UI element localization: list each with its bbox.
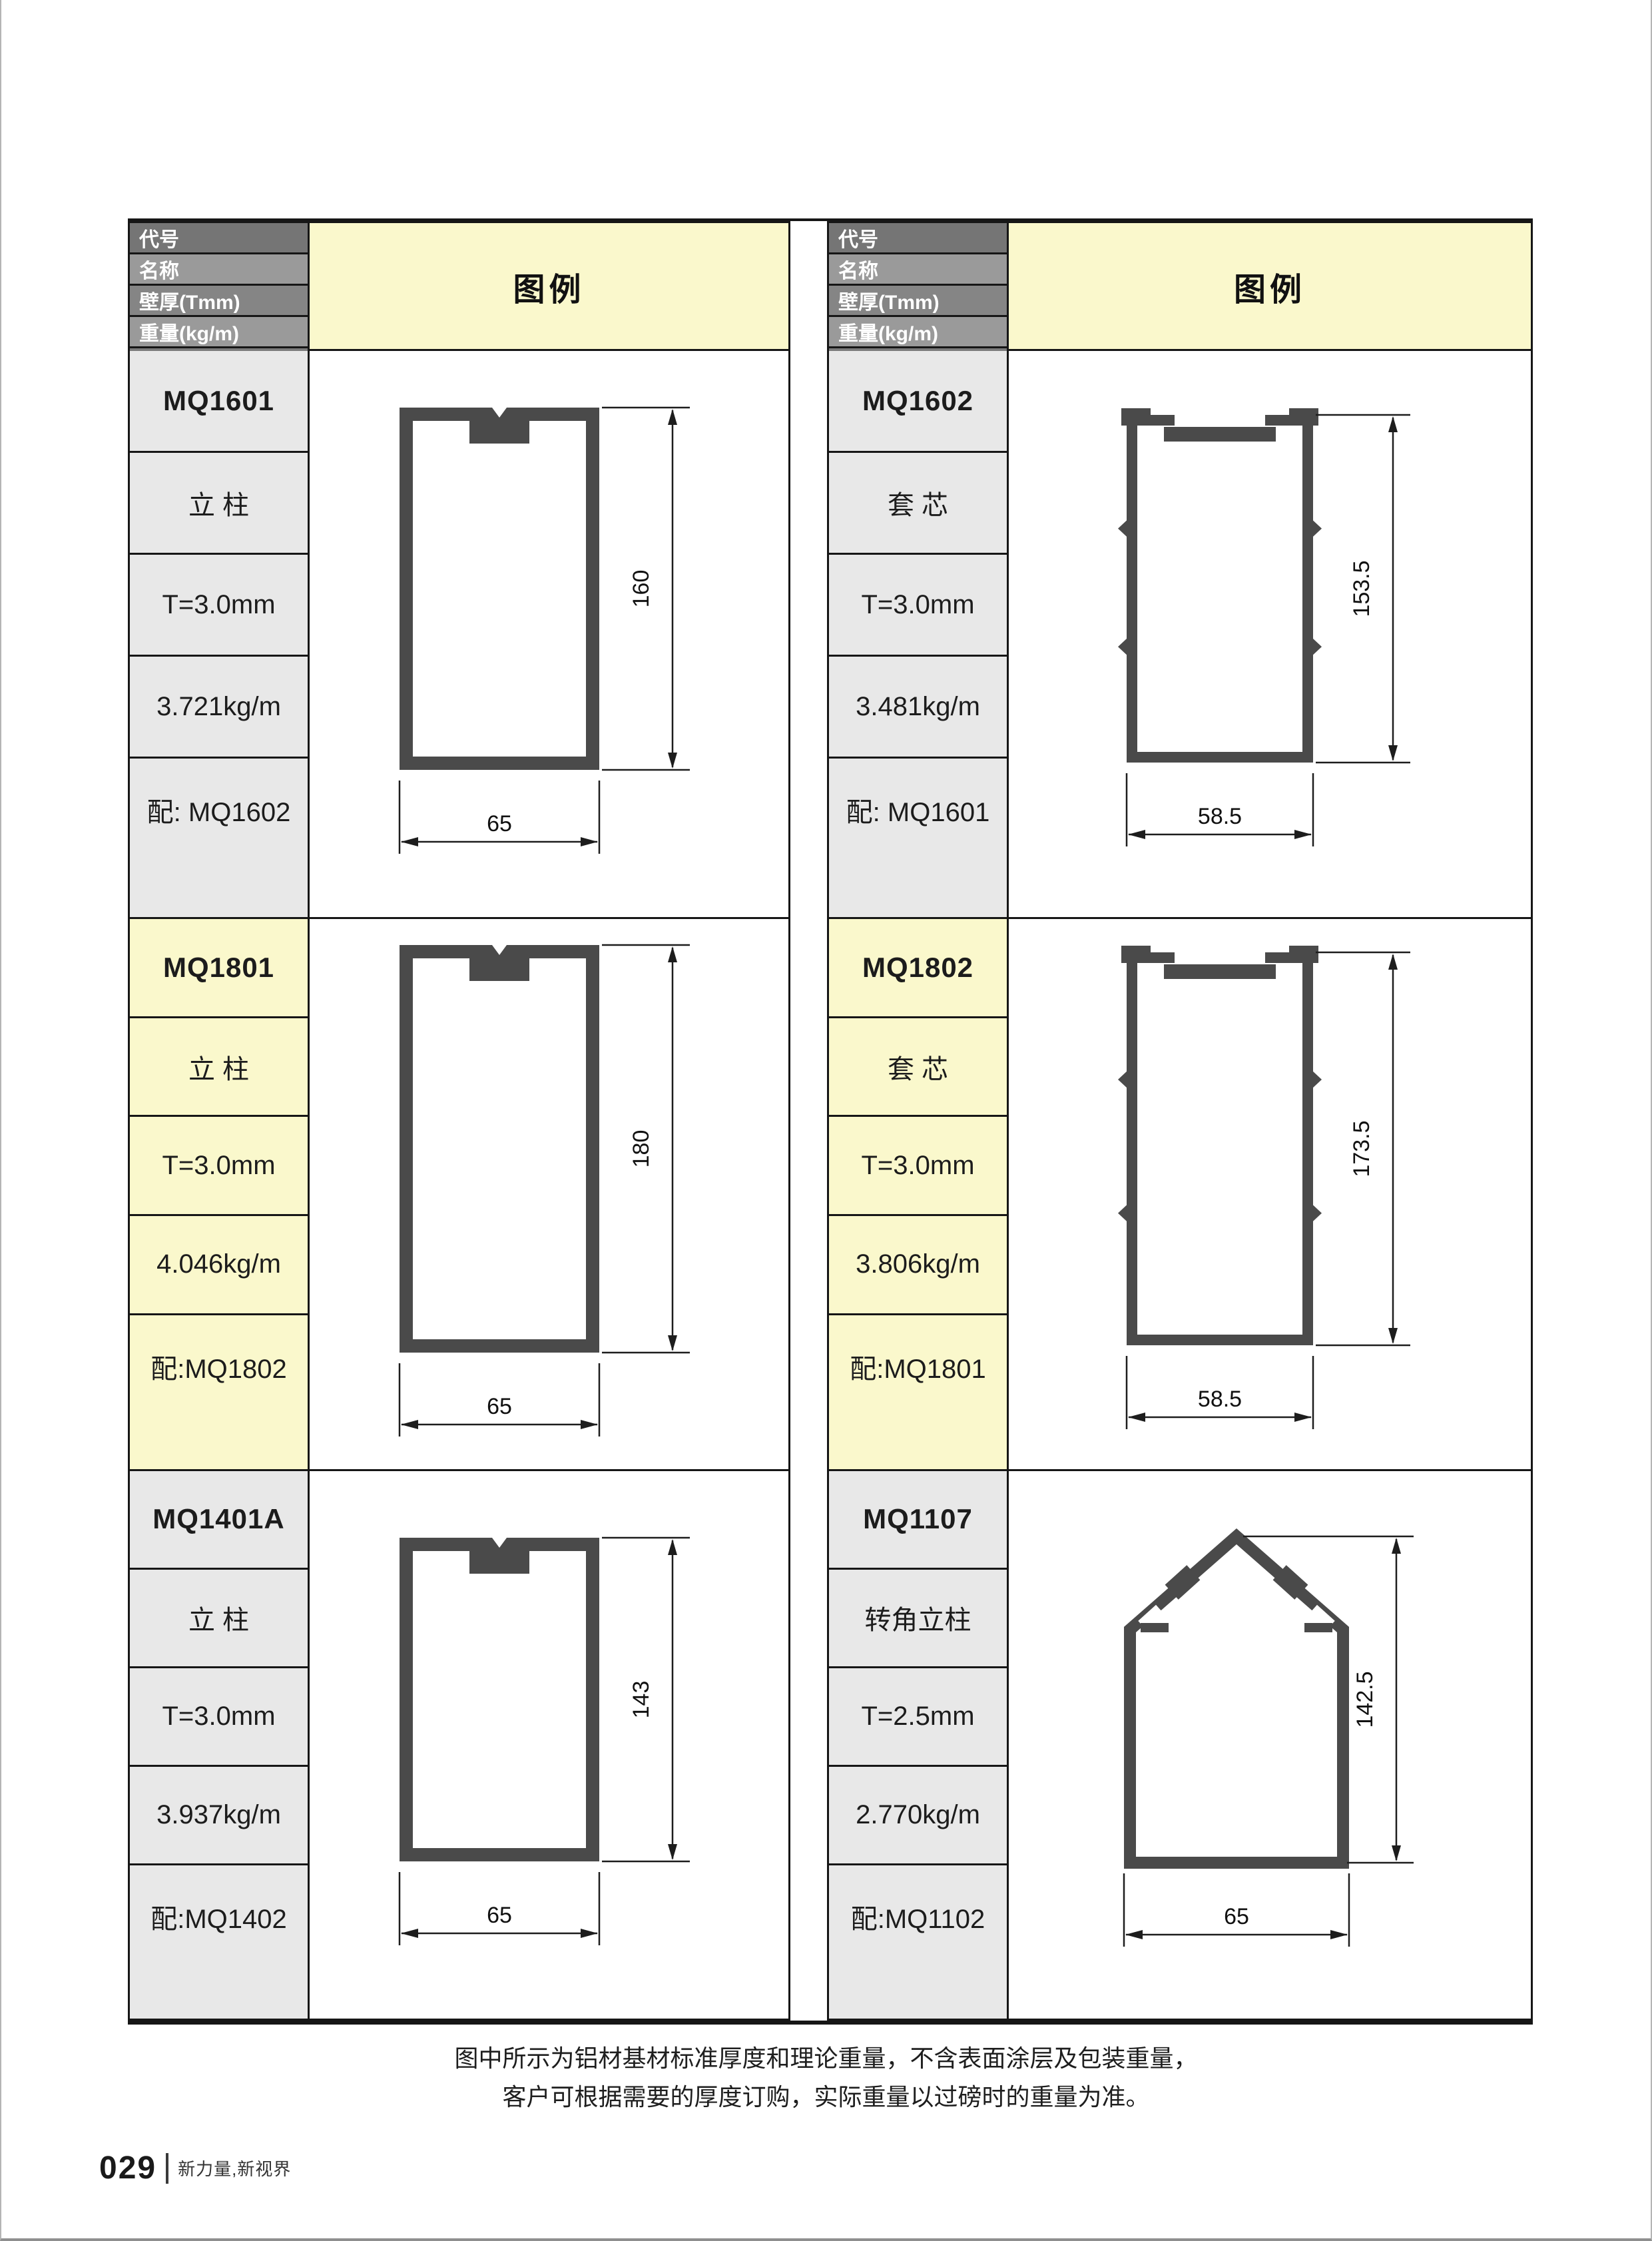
cell-match: 配:MQ1102 bbox=[829, 1865, 1007, 2019]
label-stack-MQ1801: MQ1801 立 柱 T=3.0mm 4.046kg/m 配:MQ1802 bbox=[130, 919, 310, 1471]
header-row-code: 代号 bbox=[829, 223, 1007, 254]
cell-name: 立 柱 bbox=[130, 453, 308, 555]
svg-text:65: 65 bbox=[487, 1903, 512, 1928]
svg-text:180: 180 bbox=[629, 1130, 654, 1168]
footer-divider bbox=[166, 2153, 168, 2184]
header-row-thickness: 壁厚(Tmm) bbox=[130, 286, 308, 317]
svg-text:153.5: 153.5 bbox=[1349, 560, 1374, 617]
cell-weight: 3.937kg/m bbox=[130, 1767, 308, 1865]
label-stack-MQ1107: MQ1107 转角立柱 T=2.5mm 2.770kg/m 配:MQ1102 bbox=[829, 1471, 1009, 2019]
legend-header: 图例 bbox=[1009, 223, 1531, 351]
header-row-weight: 重量(kg/m) bbox=[829, 317, 1007, 348]
header-row-name: 名称 bbox=[829, 254, 1007, 286]
svg-text:58.5: 58.5 bbox=[1198, 804, 1242, 829]
legend-header: 图例 bbox=[310, 223, 788, 351]
spec-table: 代号 名称 壁厚(Tmm) 重量(kg/m) 配套 图例 MQ1601 立 柱 … bbox=[128, 218, 1533, 2025]
table-group-right: 代号 名称 壁厚(Tmm) 重量(kg/m) 配套 图例 MQ1602 套 芯 … bbox=[827, 221, 1533, 2021]
cell-thickness: T=3.0mm bbox=[829, 1117, 1007, 1216]
profile-drawing-MQ1107: 142.5 65 bbox=[1009, 1471, 1531, 2019]
header-row-weight: 重量(kg/m) bbox=[130, 317, 308, 348]
profile-drawing-MQ1801: 180 65 bbox=[310, 919, 788, 1471]
cell-weight: 3.721kg/m bbox=[130, 657, 308, 759]
cell-code: MQ1802 bbox=[829, 919, 1007, 1018]
footer-note-line1: 图中所示为铝材基材标准厚度和理论重量，不含表面涂层及包装重量， bbox=[1, 2039, 1651, 2078]
cell-code: MQ1602 bbox=[829, 351, 1007, 453]
footer-note-line2: 客户可根据需要的厚度订购，实际重量以过磅时的重量为准。 bbox=[1, 2078, 1651, 2116]
svg-text:58.5: 58.5 bbox=[1198, 1387, 1242, 1412]
cell-match: 配:MQ1801 bbox=[829, 1315, 1007, 1469]
cell-weight: 3.481kg/m bbox=[829, 657, 1007, 759]
cell-code: MQ1601 bbox=[130, 351, 308, 453]
svg-text:143: 143 bbox=[629, 1681, 654, 1719]
footer-note: 图中所示为铝材基材标准厚度和理论重量，不含表面涂层及包装重量， 客户可根据需要的… bbox=[1, 2039, 1651, 2116]
cell-code: MQ1107 bbox=[829, 1471, 1007, 1570]
header-row-code: 代号 bbox=[130, 223, 308, 254]
cell-match: 配:MQ1402 bbox=[130, 1865, 308, 2019]
cell-name: 转角立柱 bbox=[829, 1570, 1007, 1668]
cell-name: 套 芯 bbox=[829, 453, 1007, 555]
profile-drawing-MQ1802: 173.5 58.5 bbox=[1009, 919, 1531, 1471]
cell-name: 立 柱 bbox=[130, 1018, 308, 1118]
cell-thickness: T=3.0mm bbox=[130, 1668, 308, 1767]
cell-match: 配: MQ1602 bbox=[130, 759, 308, 917]
svg-text:160: 160 bbox=[629, 570, 654, 608]
label-stack-MQ1602: MQ1602 套 芯 T=3.0mm 3.481kg/m 配: MQ1601 bbox=[829, 351, 1009, 919]
svg-text:65: 65 bbox=[487, 1394, 512, 1419]
cell-thickness: T=3.0mm bbox=[130, 555, 308, 657]
svg-text:65: 65 bbox=[487, 811, 512, 836]
cell-code: MQ1401A bbox=[130, 1471, 308, 1570]
cell-thickness: T=3.0mm bbox=[130, 1117, 308, 1216]
cell-match: 配:MQ1802 bbox=[130, 1315, 308, 1469]
cell-weight: 2.770kg/m bbox=[829, 1767, 1007, 1865]
page-footer: 029 新力量,新视界 bbox=[99, 2150, 291, 2186]
label-stack-MQ1401A: MQ1401A 立 柱 T=3.0mm 3.937kg/m 配:MQ1402 bbox=[130, 1471, 310, 2019]
profile-drawing-MQ1601: 160 65 bbox=[310, 351, 788, 919]
cell-match: 配: MQ1601 bbox=[829, 759, 1007, 917]
label-stack-MQ1601: MQ1601 立 柱 T=3.0mm 3.721kg/m 配: MQ1602 bbox=[130, 351, 310, 919]
cell-thickness: T=3.0mm bbox=[829, 555, 1007, 657]
profile-drawing-MQ1602: 153.5 58.5 bbox=[1009, 351, 1531, 919]
cell-weight: 4.046kg/m bbox=[130, 1216, 308, 1315]
catalog-page: 代号 名称 壁厚(Tmm) 重量(kg/m) 配套 图例 MQ1601 立 柱 … bbox=[0, 0, 1652, 2241]
label-stack-MQ1802: MQ1802 套 芯 T=3.0mm 3.806kg/m 配:MQ1801 bbox=[829, 919, 1009, 1471]
svg-text:142.5: 142.5 bbox=[1352, 1671, 1378, 1728]
svg-text:65: 65 bbox=[1224, 1904, 1249, 1929]
table-group-left: 代号 名称 壁厚(Tmm) 重量(kg/m) 配套 图例 MQ1601 立 柱 … bbox=[128, 221, 790, 2021]
header-label-column: 代号 名称 壁厚(Tmm) 重量(kg/m) 配套 bbox=[130, 223, 310, 351]
cell-thickness: T=2.5mm bbox=[829, 1668, 1007, 1767]
svg-text:173.5: 173.5 bbox=[1349, 1120, 1374, 1177]
profile-drawing-MQ1401A: 143 65 bbox=[310, 1471, 788, 2019]
cell-weight: 3.806kg/m bbox=[829, 1216, 1007, 1315]
header-label-column: 代号 名称 壁厚(Tmm) 重量(kg/m) 配套 bbox=[829, 223, 1009, 351]
page-number: 029 bbox=[99, 2150, 156, 2186]
cell-code: MQ1801 bbox=[130, 919, 308, 1018]
header-row-thickness: 壁厚(Tmm) bbox=[829, 286, 1007, 317]
header-row-name: 名称 bbox=[130, 254, 308, 286]
footer-tagline: 新力量,新视界 bbox=[178, 2156, 291, 2180]
cell-name: 套 芯 bbox=[829, 1018, 1007, 1118]
cell-name: 立 柱 bbox=[130, 1570, 308, 1668]
